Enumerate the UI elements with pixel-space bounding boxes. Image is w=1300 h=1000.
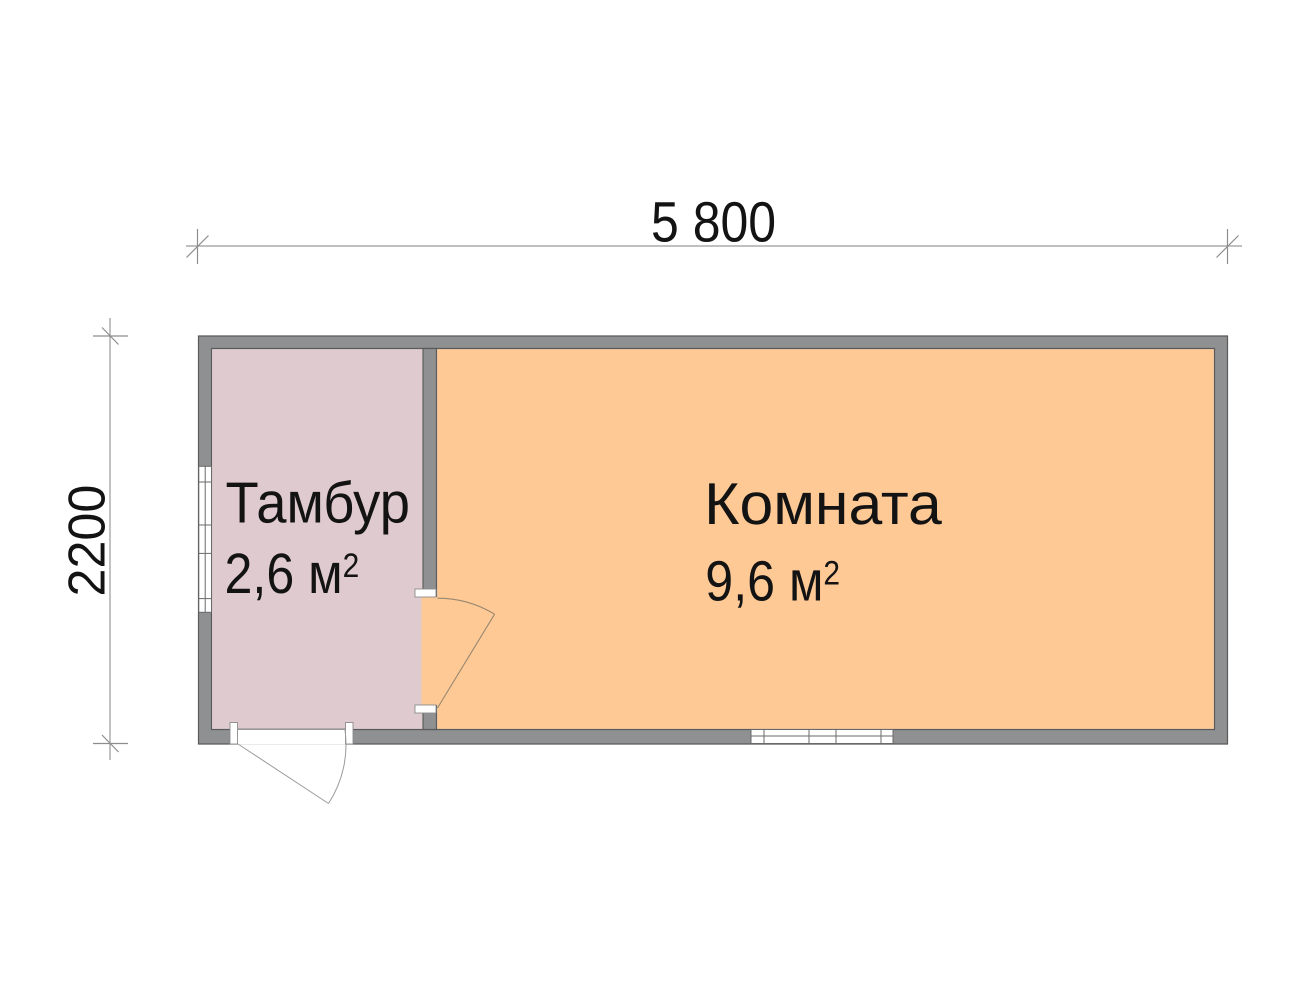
svg-text:2: 2 [823,555,840,593]
svg-text:2: 2 [343,547,360,585]
svg-text:9,6 м: 9,6 м [705,550,823,614]
svg-text:5 800: 5 800 [651,191,776,255]
svg-text:2200: 2200 [59,485,117,597]
svg-text:Комната: Комната [704,471,942,537]
svg-text:Тамбур: Тамбур [226,471,410,536]
svg-text:2,6 м: 2,6 м [225,542,343,606]
